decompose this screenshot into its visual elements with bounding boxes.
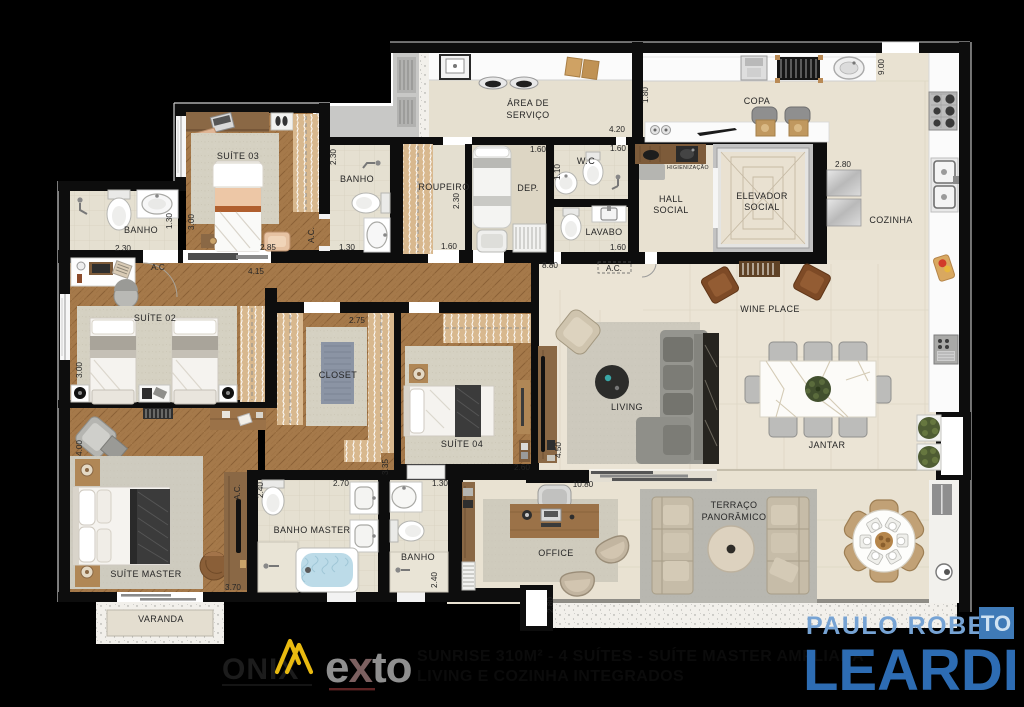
svg-text:SUÍTE 03: SUÍTE 03 bbox=[217, 151, 259, 161]
svg-text:1.80: 1.80 bbox=[641, 87, 650, 103]
svg-text:HIGIENIZAÇÃO: HIGIENIZAÇÃO bbox=[667, 164, 709, 171]
svg-text:2.30: 2.30 bbox=[452, 193, 461, 209]
svg-text:PAULO ROBER: PAULO ROBER bbox=[806, 612, 1005, 640]
svg-text:4.50: 4.50 bbox=[554, 442, 563, 458]
svg-text:2.70: 2.70 bbox=[333, 479, 349, 488]
svg-text:1.30: 1.30 bbox=[339, 243, 355, 252]
svg-text:1.60: 1.60 bbox=[610, 144, 626, 153]
svg-text:SOCIAL: SOCIAL bbox=[653, 205, 688, 215]
svg-text:2.85: 2.85 bbox=[260, 243, 276, 252]
svg-text:TO: TO bbox=[981, 611, 1011, 636]
svg-text:W.C: W.C bbox=[577, 156, 595, 166]
svg-text:TERRAÇO: TERRAÇO bbox=[711, 500, 758, 510]
svg-text:1.60: 1.60 bbox=[530, 145, 546, 154]
svg-text:3.00: 3.00 bbox=[75, 362, 84, 378]
svg-text:4.20: 4.20 bbox=[609, 125, 625, 134]
svg-text:4.15: 4.15 bbox=[248, 267, 264, 276]
svg-text:SUNRISE 310M² - 4 SUÍTES - SUÍ: SUNRISE 310M² - 4 SUÍTES - SUÍTE MASTER … bbox=[417, 646, 864, 665]
svg-text:OFFICE: OFFICE bbox=[538, 548, 573, 558]
svg-text:COZINHA: COZINHA bbox=[869, 215, 912, 225]
svg-text:8.80: 8.80 bbox=[542, 261, 558, 270]
svg-text:SOCIAL: SOCIAL bbox=[744, 202, 779, 212]
svg-text:LIVING E COZINHA INTEGRADOS: LIVING E COZINHA INTEGRADOS bbox=[417, 668, 684, 685]
svg-text:exto: exto bbox=[325, 643, 412, 692]
svg-text:2.40: 2.40 bbox=[256, 482, 265, 498]
svg-text:2.75: 2.75 bbox=[349, 316, 365, 325]
svg-text:1.30: 1.30 bbox=[165, 213, 174, 229]
svg-text:WINE PLACE: WINE PLACE bbox=[740, 304, 800, 314]
svg-text:LAVABO: LAVABO bbox=[585, 227, 622, 237]
svg-text:2.30: 2.30 bbox=[115, 244, 131, 253]
svg-text:3.00: 3.00 bbox=[187, 214, 196, 230]
svg-text:LEARDI: LEARDI bbox=[803, 638, 1019, 703]
svg-text:JANTAR: JANTAR bbox=[809, 440, 846, 450]
svg-text:4.00: 4.00 bbox=[75, 440, 84, 456]
svg-text:PANORÂMICO: PANORÂMICO bbox=[702, 512, 767, 522]
svg-text:2.80: 2.80 bbox=[835, 160, 851, 169]
svg-text:3.70: 3.70 bbox=[225, 583, 241, 592]
svg-text:10.80: 10.80 bbox=[573, 480, 594, 489]
svg-text:SERVIÇO: SERVIÇO bbox=[506, 110, 549, 120]
svg-text:A.C.: A.C. bbox=[233, 484, 242, 500]
svg-text:3.35: 3.35 bbox=[381, 459, 390, 475]
svg-text:A.C.: A.C. bbox=[606, 264, 622, 273]
svg-text:COPA: COPA bbox=[744, 96, 770, 106]
svg-text:BANHO: BANHO bbox=[124, 225, 158, 235]
svg-text:A.C.: A.C. bbox=[307, 227, 316, 243]
svg-text:HALL: HALL bbox=[659, 194, 683, 204]
svg-text:A.C: A.C bbox=[151, 263, 165, 272]
svg-text:SUÍTE 02: SUÍTE 02 bbox=[134, 313, 176, 323]
svg-text:ROUPEIRO: ROUPEIRO bbox=[418, 182, 469, 192]
svg-text:BANHO MASTER: BANHO MASTER bbox=[274, 525, 351, 535]
svg-text:VARANDA: VARANDA bbox=[138, 614, 184, 624]
svg-text:2.40: 2.40 bbox=[430, 572, 439, 588]
svg-text:ELEVADOR: ELEVADOR bbox=[736, 191, 788, 201]
svg-text:2.30: 2.30 bbox=[329, 149, 338, 165]
svg-text:LIVING: LIVING bbox=[611, 402, 643, 412]
svg-text:2.80: 2.80 bbox=[546, 597, 555, 613]
svg-text:1.60: 1.60 bbox=[610, 243, 626, 252]
svg-text:ÁREA DE: ÁREA DE bbox=[507, 98, 549, 108]
svg-text:CLOSET: CLOSET bbox=[319, 370, 358, 380]
svg-text:1.60: 1.60 bbox=[441, 242, 457, 251]
svg-text:9.00: 9.00 bbox=[877, 59, 886, 75]
svg-text:2.60: 2.60 bbox=[514, 463, 530, 472]
svg-text:DEP.: DEP. bbox=[517, 183, 538, 193]
svg-text:1.10: 1.10 bbox=[553, 164, 562, 180]
svg-text:SUÍTE 04: SUÍTE 04 bbox=[441, 439, 483, 449]
svg-text:1.30: 1.30 bbox=[432, 479, 448, 488]
svg-text:BANHO: BANHO bbox=[401, 552, 435, 562]
svg-text:BANHO: BANHO bbox=[340, 174, 374, 184]
svg-text:SUÍTE MASTER: SUÍTE MASTER bbox=[110, 569, 181, 579]
